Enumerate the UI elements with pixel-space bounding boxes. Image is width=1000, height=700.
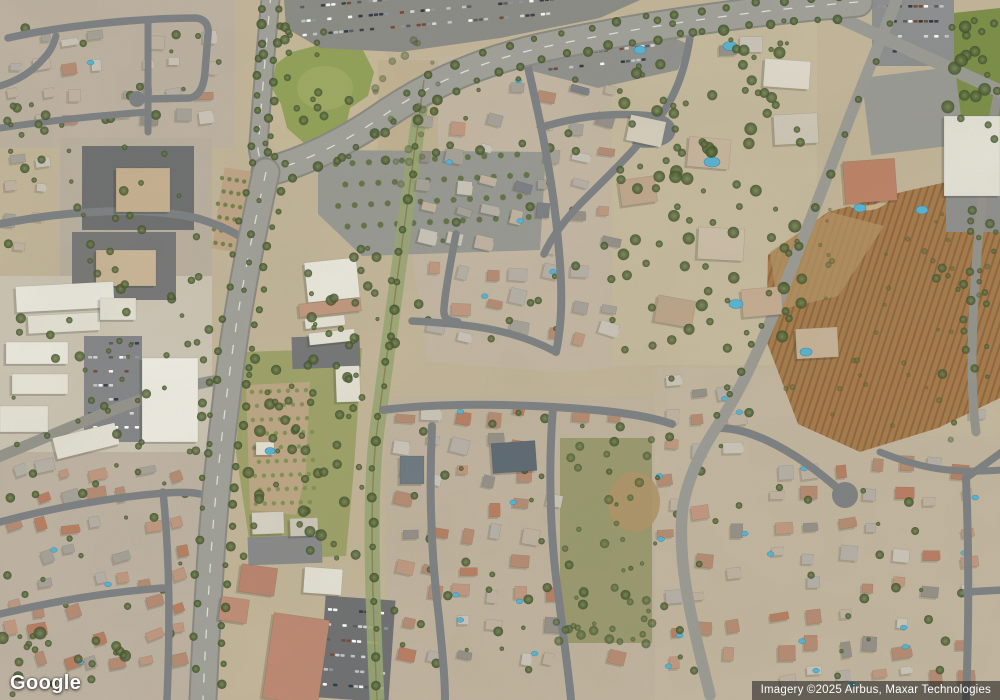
map-viewport: Google Imagery ©2025 Airbus, Maxar Techn… (0, 0, 1000, 700)
attribution-bar: Imagery ©2025 Airbus, Maxar Technologies (752, 681, 1000, 700)
imagery-attribution: Imagery ©2025 Airbus, Maxar Technologies (761, 684, 991, 696)
google-logo[interactable]: Google (10, 672, 81, 695)
satellite-map[interactable] (0, 0, 1000, 700)
